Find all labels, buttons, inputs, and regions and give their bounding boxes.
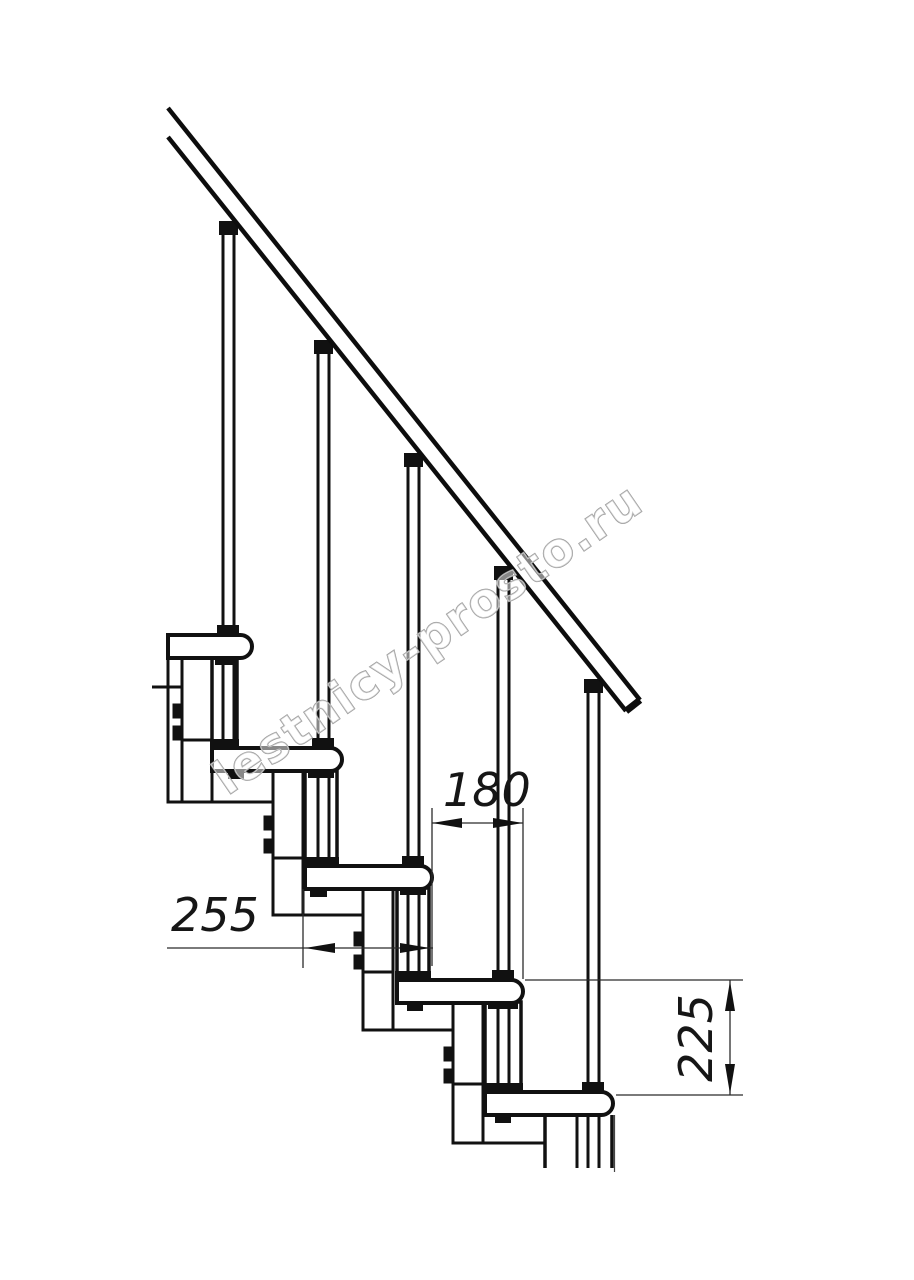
bracket-bolt (445, 1048, 453, 1060)
tread-1 (168, 635, 252, 658)
bracket-bolt (174, 705, 182, 717)
bracket-bolt (355, 956, 363, 968)
bolt-nut (310, 889, 327, 897)
bracket-bolt (355, 933, 363, 945)
bracket-bolt (174, 727, 182, 739)
technical-drawing-page: lestnicy-prosto.ru 180 255 225 (0, 0, 914, 1280)
baluster-foot-flange (492, 970, 514, 980)
tread-4 (397, 980, 523, 1003)
bracket-bolt (265, 840, 273, 852)
support-column-2 (303, 771, 339, 866)
baluster-foot-flange (402, 856, 424, 866)
baluster-foot-flange (582, 1082, 604, 1092)
tread-3 (305, 866, 432, 889)
bracket-bolt (265, 817, 273, 829)
support-column-3 (395, 888, 431, 980)
tread-5 (485, 1092, 613, 1115)
dimension-label-run: 180 (443, 763, 531, 817)
baluster-foot-flange (217, 625, 239, 635)
dimension-label-tread-length: 255 (171, 888, 259, 942)
bolt-nut (495, 1115, 511, 1123)
support-column-4 (483, 1002, 523, 1092)
support-column-1 (210, 658, 239, 748)
staircase-technical-drawing: lestnicy-prosto.ru 180 255 225 (0, 0, 914, 1280)
bolt-nut (407, 1003, 423, 1011)
bracket-bolt (445, 1070, 453, 1082)
dimension-label-rise: 225 (669, 994, 723, 1082)
